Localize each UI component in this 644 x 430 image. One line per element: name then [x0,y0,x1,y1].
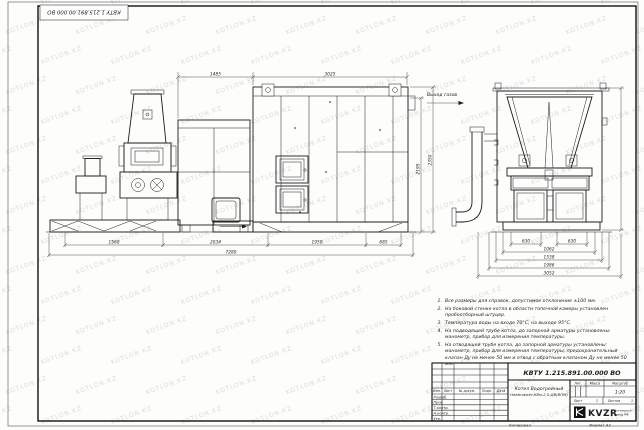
tb-product-name: Heatmaster-КВм-2,5-ДВ(ВПМ) [510,392,568,397]
dim-label: 685 [379,240,387,246]
note-number: 5. [433,343,445,368]
gas-exit-annotation: Выход газов [427,92,464,105]
title-stamp-rotated: КВТУ 1.215.891.00.000 ВО [40,5,128,20]
tb-lit-label: Лит. [573,382,582,386]
dim-label: 2034 [210,240,221,246]
note-line: 2. На боковой стенке котла в области топ… [433,307,629,320]
dim-label: 2195 [416,163,422,174]
cyclone-stack [119,90,177,220]
tb-sig-row: Т.контр. [434,406,449,410]
copied-label: Копировал [509,423,531,428]
kvzr-logo-text: KVZR [588,409,617,419]
tb-sheets-label: Листов [607,399,620,403]
dim-label: 630 [522,239,530,245]
tb-mass-label: Масса [590,382,601,386]
base-platform [50,220,180,232]
fuel-feeder [213,221,253,232]
dim-label: 1538 [544,255,555,261]
drawing-sheet: KOTLON.KZKOTLON.KZKOTLON.KZKOTLON.KZKOTL… [0,0,644,430]
tb-col-header: Подп. [482,389,492,393]
tb-sig-row: Н.контр. [434,412,450,416]
tb-col-header: № докум. [458,389,475,393]
note-line: 1. Все размеры для справок, допустимое о… [433,299,629,305]
note-line: 4. На подводящей трубе котла, до запорно… [433,329,629,342]
gas-exit-arrow-icon [459,101,465,105]
dim-label: 2350 [428,154,434,165]
small-chimney [76,156,106,220]
note-number: 4. [433,329,445,342]
note-text: На подводящей трубе котла, до запорной а… [445,329,629,342]
dim-label: 3025 [325,72,336,78]
stamp-designation: КВТУ 1.215.891.00.000 ВО [47,9,121,15]
boiler-body [253,84,415,232]
dim-label: 630 [568,239,576,245]
dim-label: 1950 [312,240,323,246]
gas-exit-label: Выход газов [427,92,457,98]
notes-block: 1. Все размеры для справок, допустимое о… [433,299,629,370]
dim-label: 1560 [109,240,120,246]
note-number: 2. [433,307,445,320]
tb-sig-row: Утв. [434,417,441,421]
dimensions-front: 1485 3025 2195 2350 1560 2034 1950 685 7… [47,72,436,258]
dim-label: 1485 [210,72,221,78]
tb-sig-row: Разраб. [434,395,448,399]
note-text: На отводящей трубе котла, до запорной ар… [445,343,629,368]
drawing-page: { "watermark": { "text": "KOTLON.KZ" }, … [0,0,644,430]
dim-label: 1062 [544,247,555,253]
tb-col-header: Дата [496,389,506,393]
tb-sheet-label: Лист [573,399,582,403]
sheet-footer: Копировал Формат А2 [509,423,611,428]
tb-col-header: Изм. [433,389,441,393]
kvzr-logo-icon [574,407,586,419]
dimensions-side: 630 630 1062 1538 1986 3052 [476,232,623,279]
dim-label: 7280 [226,250,237,256]
tb-designation: КВТУ 1.215.891.00.000 ВО [523,369,621,377]
tb-col-header: Лист [443,389,452,393]
note-text: Температура воды на входе 70°С, на выход… [445,321,629,327]
lifting-lug-icon [262,84,274,96]
note-number: 3. [433,321,445,327]
tb-sheet-value: 1 [596,399,598,403]
lifting-lug-icon [389,84,401,96]
note-text: На боковой стенке котла в области топочн… [445,307,629,320]
title-block: Изм. Лист № докум. Подп. Дата Разраб. Пр… [432,363,636,421]
water-pipe [452,127,497,226]
tb-sheets-value: 1 [631,399,633,403]
note-line: 5. На отводящей трубе котла, до запорной… [433,343,629,368]
tb-scale-value: 1:20 [615,390,625,396]
fuel-bin [178,120,250,232]
logo-caption: завод РФ [614,413,629,417]
tb-scale-label: Масштаб [612,382,628,386]
dim-label: 3052 [544,271,555,277]
port-circle-icon [132,179,145,192]
note-line: 3. Температура воды на входе 70°С, на вы… [433,321,629,327]
note-text: Все размеры для справок, допустимое откл… [445,299,629,305]
tb-sig-row: Пров. [434,401,444,405]
note-number: 1. [433,299,445,305]
dim-label: 1986 [544,263,555,269]
front-view [46,84,416,232]
side-view [452,83,624,232]
format-label: Формат А2 [589,423,611,428]
